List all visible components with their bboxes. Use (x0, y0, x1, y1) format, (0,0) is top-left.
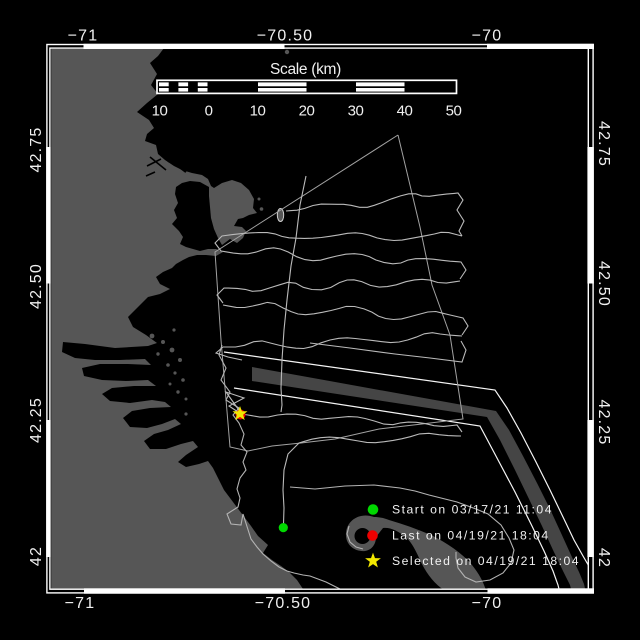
svg-text:Last on 04/19/21 18:04: Last on 04/19/21 18:04 (392, 529, 550, 543)
svg-text:−70.50: −70.50 (257, 28, 314, 45)
svg-text:30: 30 (348, 103, 364, 120)
svg-text:42.75: 42.75 (595, 121, 612, 167)
svg-text:−70.50: −70.50 (255, 595, 312, 612)
svg-text:42.75: 42.75 (28, 126, 45, 172)
svg-text:42.50: 42.50 (595, 261, 612, 307)
svg-text:40: 40 (397, 103, 413, 120)
svg-text:Selected on 04/19/21 18:04: Selected on 04/19/21 18:04 (392, 554, 580, 568)
svg-text:−70: −70 (472, 28, 503, 45)
svg-text:10: 10 (250, 103, 266, 120)
svg-text:50: 50 (446, 103, 462, 120)
svg-text:−71: −71 (68, 28, 99, 45)
svg-text:0: 0 (205, 103, 213, 120)
svg-text:42: 42 (28, 546, 45, 566)
svg-text:42.25: 42.25 (595, 399, 612, 445)
svg-text:10: 10 (152, 103, 168, 120)
svg-text:42.50: 42.50 (28, 263, 45, 309)
svg-text:20: 20 (299, 103, 315, 120)
svg-text:Scale (km): Scale (km) (270, 61, 341, 78)
svg-text:−71: −71 (65, 595, 96, 612)
svg-text:42.25: 42.25 (28, 397, 45, 443)
svg-text:−70: −70 (472, 595, 503, 612)
svg-text:42: 42 (595, 548, 612, 568)
svg-text:Start on 03/17/21 11:04: Start on 03/17/21 11:04 (392, 503, 553, 517)
